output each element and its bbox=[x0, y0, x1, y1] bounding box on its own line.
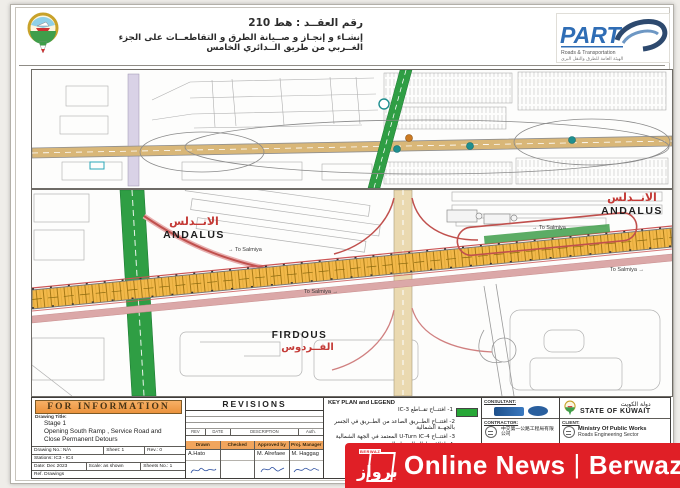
drawing-sheet: رقم العقــد : هط 210 إنشـاء و إنجـاز و ص… bbox=[10, 4, 674, 484]
header-arabic-titles: رقم العقــد : هط 210 إنشـاء و إنجـاز و ص… bbox=[111, 17, 363, 53]
direction-label: To Salmiya → bbox=[304, 289, 338, 295]
street-grid bbox=[60, 77, 378, 180]
watermark-text: Online News | Berwaz bbox=[404, 450, 680, 481]
kuwait-emblem-icon bbox=[25, 11, 61, 55]
signature-icon bbox=[189, 464, 217, 476]
key-plan-map bbox=[31, 69, 673, 189]
ministry-sector: Roads Engineering Sector bbox=[578, 432, 647, 438]
approval-cell-manager: Proj. Manager M. Haggag bbox=[290, 441, 324, 478]
legend-item: 1- افتتــاح تقــاطع IC-3 bbox=[327, 407, 478, 417]
project-title-line: إنشـاء و إنجـاز و صــيانة الطرق و التقاط… bbox=[111, 33, 363, 53]
revisions-section: REVISIONS REV DATE DESCRIPTION Auth. Dra… bbox=[186, 398, 324, 478]
drawing-fields: Drawing No.: N/A Sheet: 1 Rev.: 0 Statio… bbox=[32, 446, 185, 478]
date-field: Date: Dec 2023 bbox=[32, 463, 87, 470]
watermark-text-left: Online News bbox=[404, 450, 566, 481]
housing-blocks bbox=[384, 72, 668, 184]
drawing-title-line: Stage 1 bbox=[44, 420, 185, 428]
watermark-separator: | bbox=[574, 449, 581, 480]
canal-shape bbox=[90, 162, 104, 169]
approval-cell-approved: Approved by M. Alrefaee bbox=[255, 441, 290, 478]
direction-arrow-icon: → bbox=[532, 225, 538, 231]
ref-drawings-field: Ref. Drawings bbox=[32, 471, 185, 478]
approval-cell-drawn: Drawn A.Hato bbox=[186, 441, 221, 478]
drawing-sheet-page: رقم العقــد : هط 210 إنشـاء و إنجـاز و ص… bbox=[0, 0, 680, 488]
drawing-title-section: FOR INFORMATION Drawing Title: Stage 1 O… bbox=[32, 398, 186, 478]
berwaz-watermark-banner: BERWAZ برواز Online News | Berwaz bbox=[345, 443, 680, 488]
sheet-number: Sheet: 1 bbox=[104, 447, 145, 454]
kuwait-emblem-small-icon bbox=[563, 400, 577, 416]
berwaz-logo-arabic: برواز bbox=[357, 464, 398, 480]
contract-number-line: رقم العقــد : هط 210 bbox=[111, 17, 363, 29]
interchange-marker bbox=[379, 99, 389, 109]
south-road bbox=[479, 284, 516, 396]
sheets-count-field: Sheets No.: 1 bbox=[141, 463, 185, 470]
part-logo-subtitle-ar: الهيئة العامة للطرق والنقل البري bbox=[561, 56, 623, 62]
part-logo-text: PART bbox=[560, 22, 622, 48]
watermark-text-right: Berwaz bbox=[589, 450, 680, 481]
arterial-road bbox=[128, 74, 139, 186]
swoosh-icon bbox=[617, 21, 665, 49]
scale-field: Scale: as shown bbox=[87, 463, 142, 470]
approval-row: Drawn A.Hato Checked Approved by M. Alre… bbox=[186, 441, 323, 478]
building-cluster bbox=[447, 210, 517, 224]
direction-label: → To Salmiya bbox=[532, 225, 566, 231]
direction-label: To Salmiya → bbox=[610, 267, 644, 273]
consultant-logo-icon bbox=[528, 406, 548, 416]
for-information-banner: FOR INFORMATION bbox=[35, 400, 182, 414]
berwaz-logo-icon: BERWAZ برواز bbox=[357, 449, 395, 483]
signature-icon bbox=[258, 464, 286, 476]
detail-plan-map: الانــدلس ANDALUS الانــدلس ANDALUS FIRD… bbox=[31, 189, 673, 397]
berwaz-logo-caption: BERWAZ bbox=[359, 449, 381, 454]
contractor-logo-icon bbox=[485, 426, 497, 438]
stations-field: Stations: IC3 - IC4 bbox=[32, 455, 185, 462]
legend-swatch-green bbox=[456, 408, 478, 417]
signature-icon bbox=[292, 464, 320, 476]
legend-item: 2- افتتــاح الطــريق الصاعد من الطــريق … bbox=[327, 419, 478, 433]
legend-header: KEY PLAN and LEGEND bbox=[324, 398, 481, 407]
state-name-arabic: دولة الكويت bbox=[580, 401, 651, 408]
drawing-number: Drawing No.: N/A bbox=[32, 447, 104, 454]
direction-arrow-icon: → bbox=[332, 289, 338, 295]
revision-column-headers: REV DATE DESCRIPTION Auth. bbox=[186, 429, 323, 436]
part-authority-logo: PART Roads & Transportation الهيئة العام… bbox=[556, 13, 670, 63]
consultant-logo-icon bbox=[494, 407, 524, 416]
part-logo-subtitle-en: Roads & Transportation bbox=[561, 50, 616, 56]
state-name-english: STATE OF KUWAIT bbox=[580, 408, 651, 415]
contractor-name: 中交第一公路工程局有限公司 bbox=[500, 427, 556, 438]
revisions-header: REVISIONS bbox=[186, 398, 323, 411]
direction-label: → To Salmiya bbox=[228, 247, 262, 253]
drawing-title-line: Opening South Ramp , Service Road and bbox=[44, 428, 185, 436]
ministry-logo-icon bbox=[563, 426, 575, 438]
direction-arrow-icon: → bbox=[638, 267, 644, 273]
header-divider bbox=[19, 65, 665, 66]
legend-item: 3- افتتــاح U-Turn IC-4 المعتمد في الجهة… bbox=[327, 434, 478, 441]
approval-cell-checked: Checked bbox=[221, 441, 256, 478]
drawing-title-line: Close Permanent Detours bbox=[44, 436, 185, 444]
revision-number: Rev.: 0 bbox=[145, 447, 185, 454]
direction-arrow-icon: → bbox=[228, 247, 234, 253]
